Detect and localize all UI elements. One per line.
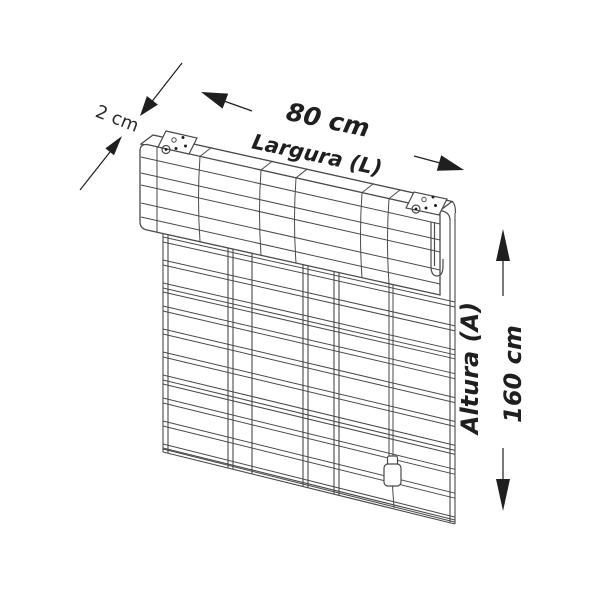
height-name-label: Altura (A) [456, 302, 484, 434]
height-value-label: 160 cm [499, 325, 527, 423]
blind-diagram [0, 0, 600, 600]
cord-tassel [384, 464, 401, 486]
diagram-canvas: 2 cm 80 cm Largura (L) Altura (A) 160 cm [0, 0, 600, 600]
width-dimension-arrow-right [414, 155, 464, 170]
depth-dimension-arrow-lower [80, 136, 122, 190]
width-dimension-arrow-left [201, 92, 252, 111]
height-dimension-arrow-down [496, 448, 510, 511]
depth-dimension-arrow-upper [140, 63, 182, 116]
pull-cord [384, 284, 401, 508]
height-dimension-arrow-up [496, 229, 510, 296]
